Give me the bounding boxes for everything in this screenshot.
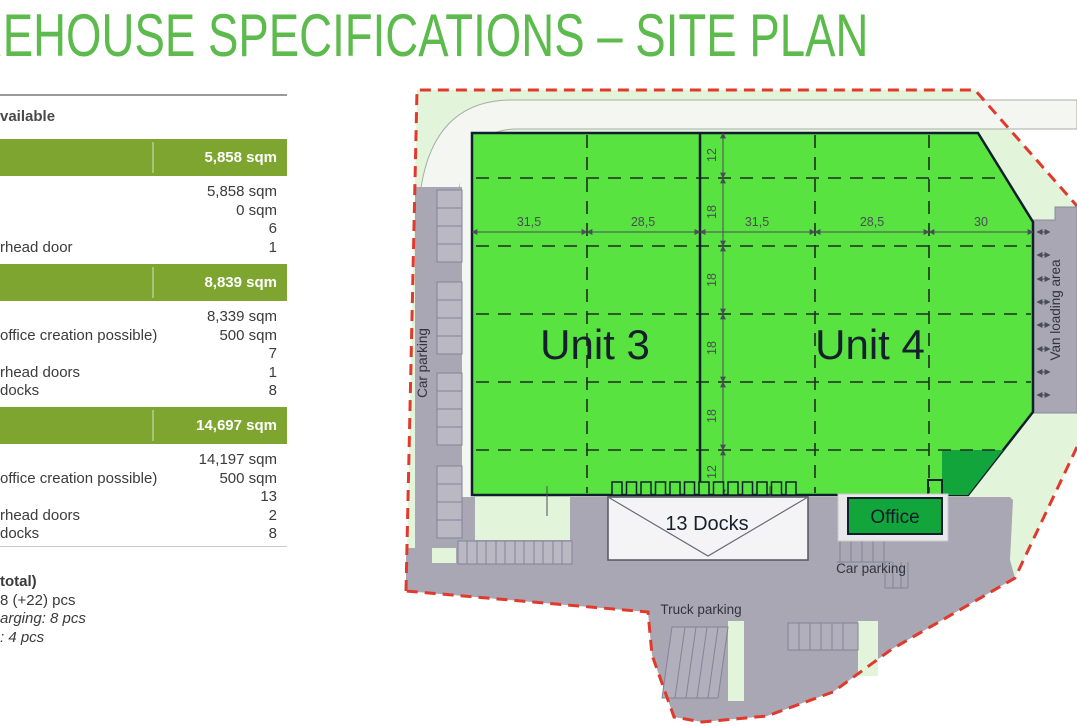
dim-label: 31,5 — [745, 215, 769, 229]
dim-label: 12 — [705, 148, 719, 162]
dim-label: 18 — [705, 205, 719, 219]
unit3-label: Unit 3 — [540, 321, 650, 368]
dim-label: 30 — [974, 215, 988, 229]
dim-label: 18 — [705, 409, 719, 423]
van-loading-label: Van loading area — [1048, 259, 1063, 361]
docks-label: 13 Docks — [665, 513, 748, 535]
truck-parking-label: Truck parking — [660, 602, 741, 617]
office-label: Office — [870, 507, 919, 528]
building-notch — [928, 480, 942, 495]
site-plan: 31,5 28,5 31,5 28,5 30 12 18 18 18 18 12 — [0, 0, 1077, 726]
dim-label: 18 — [705, 273, 719, 287]
dim-label: 31,5 — [517, 215, 541, 229]
dim-label: 18 — [705, 341, 719, 355]
car-parking-right-label: Car parking — [836, 561, 906, 576]
car-parking-bottom-row — [458, 541, 572, 564]
car-parking-left-label: Car parking — [415, 328, 430, 398]
dim-label: 28,5 — [631, 215, 655, 229]
unit4-label: Unit 4 — [815, 321, 925, 368]
dim-label: 12 — [705, 465, 719, 479]
dim-label: 28,5 — [860, 215, 884, 229]
